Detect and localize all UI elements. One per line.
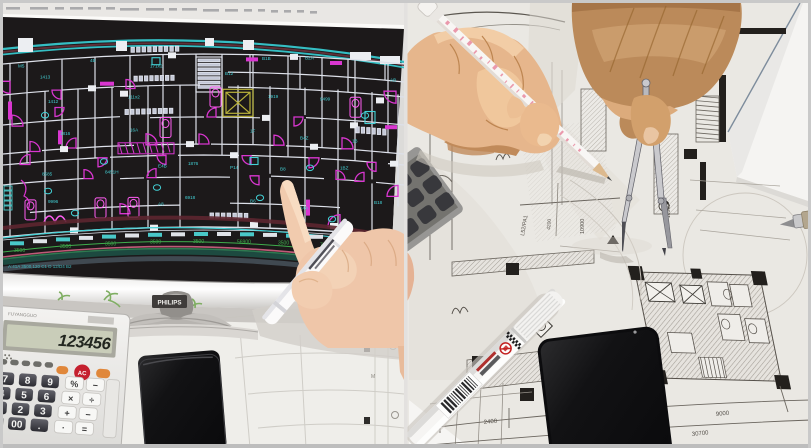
svg-text:BZA: BZA: [305, 56, 315, 61]
svg-text:1919: 1919: [268, 94, 279, 99]
svg-text:B4Z: B4Z: [300, 135, 309, 140]
svg-text:PHILIPS: PHILIPS: [157, 300, 181, 307]
svg-text:B1B: B1B: [262, 56, 271, 61]
svg-text:14A: 14A: [300, 205, 309, 210]
svg-text:123456: 123456: [58, 332, 113, 354]
svg-text:1412: 1412: [48, 99, 59, 104]
svg-text:−: −: [85, 409, 91, 419]
svg-text:+: +: [64, 408, 70, 418]
svg-text:3500: 3500: [105, 241, 116, 247]
svg-text:AC: AC: [78, 371, 88, 378]
svg-text:9499: 9499: [320, 96, 331, 101]
svg-text:16A: 16A: [130, 127, 139, 132]
svg-text:6918: 6918: [185, 195, 196, 200]
svg-text:=: =: [81, 424, 87, 434]
svg-text:8585: 8585: [42, 172, 53, 177]
svg-text:1B: 1B: [352, 139, 358, 144]
svg-text:1BZ: 1BZ: [340, 166, 349, 171]
svg-text:10900: 10900: [580, 219, 586, 234]
svg-text:3500: 3500: [150, 240, 161, 246]
svg-text:AB: AB: [390, 78, 396, 83]
svg-text:−: −: [92, 380, 98, 390]
svg-text:A8: A8: [158, 202, 164, 207]
svg-text:1F: 1F: [250, 129, 256, 134]
svg-text:00: 00: [11, 419, 23, 431]
svg-text:B6: B6: [250, 199, 256, 204]
svg-text:M5: M5: [18, 64, 25, 69]
svg-text:1876: 1876: [188, 161, 199, 166]
svg-text:B12: B12: [225, 71, 234, 76]
svg-text:56900: 56900: [237, 239, 251, 245]
svg-text:111x2: 111x2: [128, 94, 140, 99]
svg-text:9996: 9996: [48, 199, 59, 204]
svg-text:A:41A 3500,120 C1 D 12/D4 B2: A:41A 3500,120 C1 D 12/D4 B2: [8, 264, 72, 269]
svg-text:8451H: 8451H: [105, 169, 119, 174]
svg-text:÷: ÷: [89, 395, 95, 405]
svg-text:4200: 4200: [546, 218, 553, 230]
svg-text:M: M: [371, 374, 375, 380]
svg-text:B8: B8: [280, 167, 286, 172]
svg-text:B18: B18: [374, 200, 383, 205]
svg-text:1816: 1816: [60, 131, 71, 136]
svg-text:×: ×: [68, 393, 74, 403]
svg-text:%: %: [70, 379, 79, 390]
svg-text:E4B: E4B: [158, 164, 167, 169]
svg-text:4B: 4B: [90, 58, 96, 63]
svg-text:171x2: 171x2: [150, 64, 163, 69]
svg-text:P14: P14: [230, 165, 239, 170]
svg-text:1413: 1413: [40, 75, 51, 80]
